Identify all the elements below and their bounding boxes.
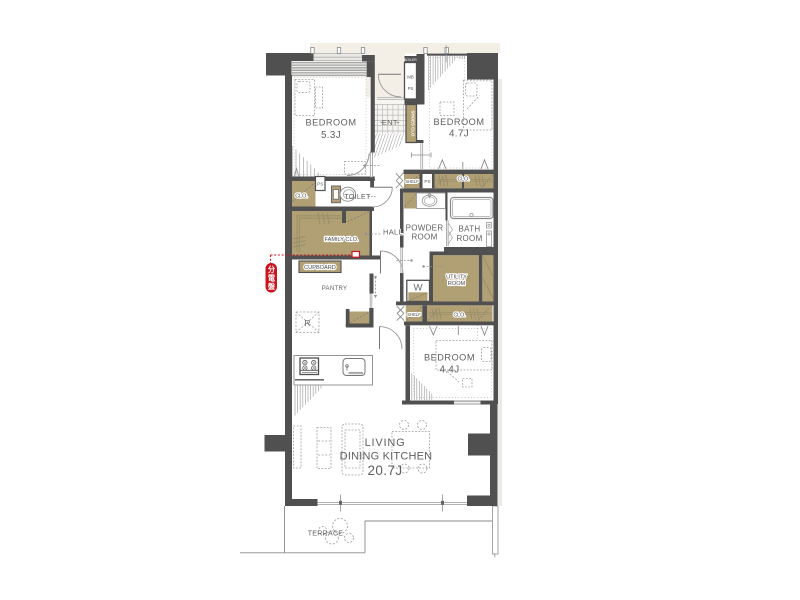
svg-text:5.3J: 5.3J — [321, 130, 341, 141]
svg-text:PS: PS — [317, 182, 323, 187]
svg-text:MB: MB — [407, 75, 414, 80]
svg-text:DINING KITCHEN: DINING KITCHEN — [340, 451, 433, 463]
svg-text:SHELF: SHELF — [407, 312, 421, 317]
svg-text:BATH: BATH — [459, 225, 481, 234]
svg-text:TERRACE: TERRACE — [308, 531, 344, 538]
svg-text:ROOM: ROOM — [448, 281, 466, 287]
svg-text:BEDROOM: BEDROOM — [306, 118, 357, 128]
svg-text:HALL: HALL — [383, 228, 403, 237]
svg-text:SHOES CLO: SHOES CLO — [410, 111, 415, 137]
svg-text:LIVING: LIVING — [365, 437, 406, 449]
svg-text:CLO.: CLO. — [453, 313, 465, 319]
svg-text:FAMILY CLO.: FAMILY CLO. — [325, 237, 359, 243]
svg-text:CLO.: CLO. — [457, 177, 469, 183]
svg-text:W: W — [414, 283, 423, 294]
svg-text:CUPBOARD: CUPBOARD — [304, 265, 336, 271]
svg-text:PANTRY: PANTRY — [322, 286, 348, 292]
svg-text:BOILER: BOILER — [404, 58, 417, 62]
svg-text:4.7J: 4.7J — [449, 129, 469, 140]
svg-text:20.7J: 20.7J — [367, 463, 402, 478]
svg-text:UTILITY: UTILITY — [446, 275, 467, 281]
svg-text:R: R — [304, 318, 310, 328]
svg-text:盤: 盤 — [268, 282, 276, 291]
svg-text:4.4J: 4.4J — [439, 365, 459, 376]
svg-text:BEDROOM: BEDROOM — [434, 117, 485, 127]
svg-text:TOILET: TOILET — [344, 194, 371, 201]
svg-text:PS: PS — [408, 86, 414, 91]
svg-text:ROOM: ROOM — [411, 233, 437, 242]
svg-text:SHELF: SHELF — [405, 179, 419, 184]
svg-text:BEDROOM: BEDROOM — [424, 353, 475, 363]
svg-text:POWDER: POWDER — [406, 224, 444, 233]
svg-text:PS: PS — [424, 179, 430, 184]
svg-text:ENT: ENT — [382, 118, 398, 127]
svg-text:ROOM: ROOM — [456, 234, 482, 243]
svg-text:CLO.: CLO. — [295, 194, 308, 200]
